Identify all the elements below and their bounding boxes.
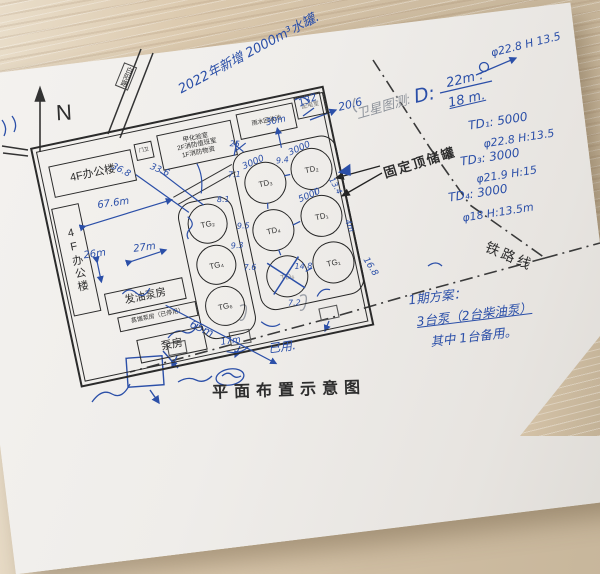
bold-ink-arrow	[337, 164, 353, 179]
dim-9-5: 9.5	[237, 221, 250, 230]
dim-7-2: 7.2	[288, 298, 301, 307]
note-d-label: D:	[412, 82, 437, 108]
dim-7-1: 7.1	[228, 170, 241, 179]
dim-14-8: 14.8	[294, 261, 312, 271]
north-arrow	[36, 88, 45, 152]
dim-7-6: 7.6	[243, 263, 256, 272]
site-ink-scribbles	[96, 128, 339, 373]
compass-label: N	[55, 100, 72, 127]
dim-8-1: 8.1	[217, 195, 230, 204]
dim-9-4: 9.4	[276, 155, 290, 165]
dim-25: 25	[229, 139, 240, 149]
drawing-layer: 4F办公楼 门卫 甲化验室 2F消防值班室 1F消防物资 雨水回收池 配电室 4…	[0, 0, 600, 436]
dim-9-3: 9.3	[231, 241, 244, 251]
